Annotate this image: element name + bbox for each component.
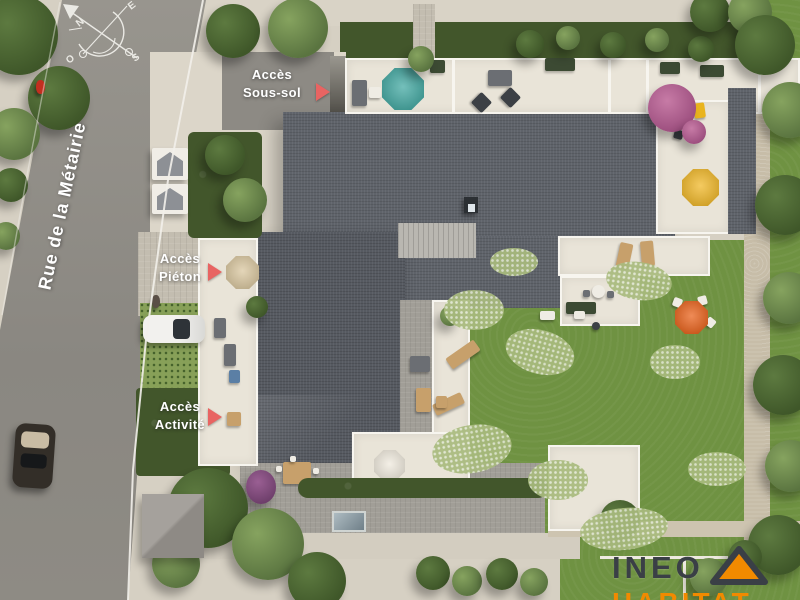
tree-canopy: [288, 552, 346, 600]
outdoor-table: [369, 87, 381, 98]
logo-roof-icon: [710, 545, 768, 585]
tree-canopy: [206, 4, 260, 58]
chair: [583, 290, 590, 297]
car-roof-highlight: [21, 431, 50, 449]
access-pieton-arrow-icon: [208, 263, 222, 281]
pergola-post: [574, 311, 585, 319]
pedestrian-red: [36, 80, 45, 94]
tree-canopy: [516, 30, 544, 58]
courtyard-sofa: [410, 356, 430, 372]
entrance-canopy: [152, 148, 188, 180]
flower-meadow: [650, 345, 700, 379]
rooftop-chimney-face: [468, 204, 475, 212]
courtyard-table: [436, 396, 447, 408]
planter-box: [660, 62, 680, 74]
flower-meadow: [688, 452, 746, 486]
flower-meadow: [444, 290, 504, 330]
chair: [607, 291, 614, 298]
logo-brand-text: INEO: [612, 550, 704, 586]
planter-box: [545, 58, 575, 71]
outdoor-sofa: [488, 70, 512, 86]
tree-canopy: [735, 15, 795, 75]
flower-meadow: [528, 460, 588, 500]
flower-meadow: [490, 248, 538, 276]
chair: [313, 468, 319, 474]
roof-right-strip: [728, 88, 756, 234]
access-sous-sol-arrow-icon: [316, 83, 330, 101]
tree-canopy: [0, 168, 28, 202]
bush: [416, 556, 450, 590]
tree-canopy: [268, 0, 328, 58]
developer-logo: INEO HABITAT: [612, 545, 800, 600]
orange-parasol: [675, 301, 708, 334]
bush-row: [298, 478, 548, 498]
balcony-table-set: [227, 412, 241, 426]
tree-canopy: [205, 135, 245, 175]
chair: [276, 466, 282, 472]
pergola-post: [540, 311, 555, 320]
balcony-lounge: [214, 318, 226, 338]
small-tree: [246, 296, 268, 318]
access-sous-sol-label: Accès Sous-sol: [232, 66, 312, 101]
balcony-lounge: [224, 344, 236, 366]
round-table: [592, 285, 605, 298]
fire-pit: [592, 322, 600, 330]
purple-flowering-shrub: [246, 470, 276, 504]
tree-canopy: [0, 0, 58, 75]
bush: [520, 568, 548, 596]
tree-canopy: [688, 36, 714, 62]
garden-shed: [142, 494, 204, 558]
tree-canopy: [645, 28, 669, 52]
courtyard-lounge: [416, 388, 431, 412]
roof-top-wing: [283, 112, 675, 238]
pink-flowering-tree: [682, 120, 706, 144]
site-plan-aerial-view: N E S O Rue de la Métairie Accès Sous-so…: [0, 0, 800, 600]
bush: [486, 558, 518, 590]
tree-canopy: [223, 178, 267, 222]
canopy-roof: [157, 152, 183, 176]
chair: [290, 456, 296, 462]
entrance-canopy: [152, 184, 188, 214]
access-sous-sol-line2: Sous-sol: [232, 84, 312, 102]
logo-sub-text: HABITAT: [612, 587, 800, 600]
terrace-divider: [608, 58, 611, 114]
pedestrian: [152, 295, 160, 308]
car-windshield: [173, 319, 190, 339]
terrace-divider: [452, 58, 455, 114]
metal-roof-section: [398, 223, 476, 258]
outdoor-sofa: [352, 80, 367, 106]
skylight: [332, 511, 366, 532]
access-activite-arrow-icon: [208, 408, 222, 426]
blue-lounger: [229, 370, 240, 383]
planter-box: [700, 65, 724, 77]
white-car: [143, 315, 205, 343]
car-rear-glass: [20, 453, 47, 469]
dark-car: [12, 423, 56, 490]
bush: [452, 566, 482, 596]
canopy-roof: [157, 188, 183, 210]
tree-canopy: [600, 32, 626, 58]
tan-parasol: [226, 256, 259, 289]
basement-ramp: [330, 56, 346, 116]
tree-canopy: [556, 26, 580, 50]
tree-canopy: [408, 46, 434, 72]
access-sous-sol-line1: Accès: [232, 66, 312, 84]
